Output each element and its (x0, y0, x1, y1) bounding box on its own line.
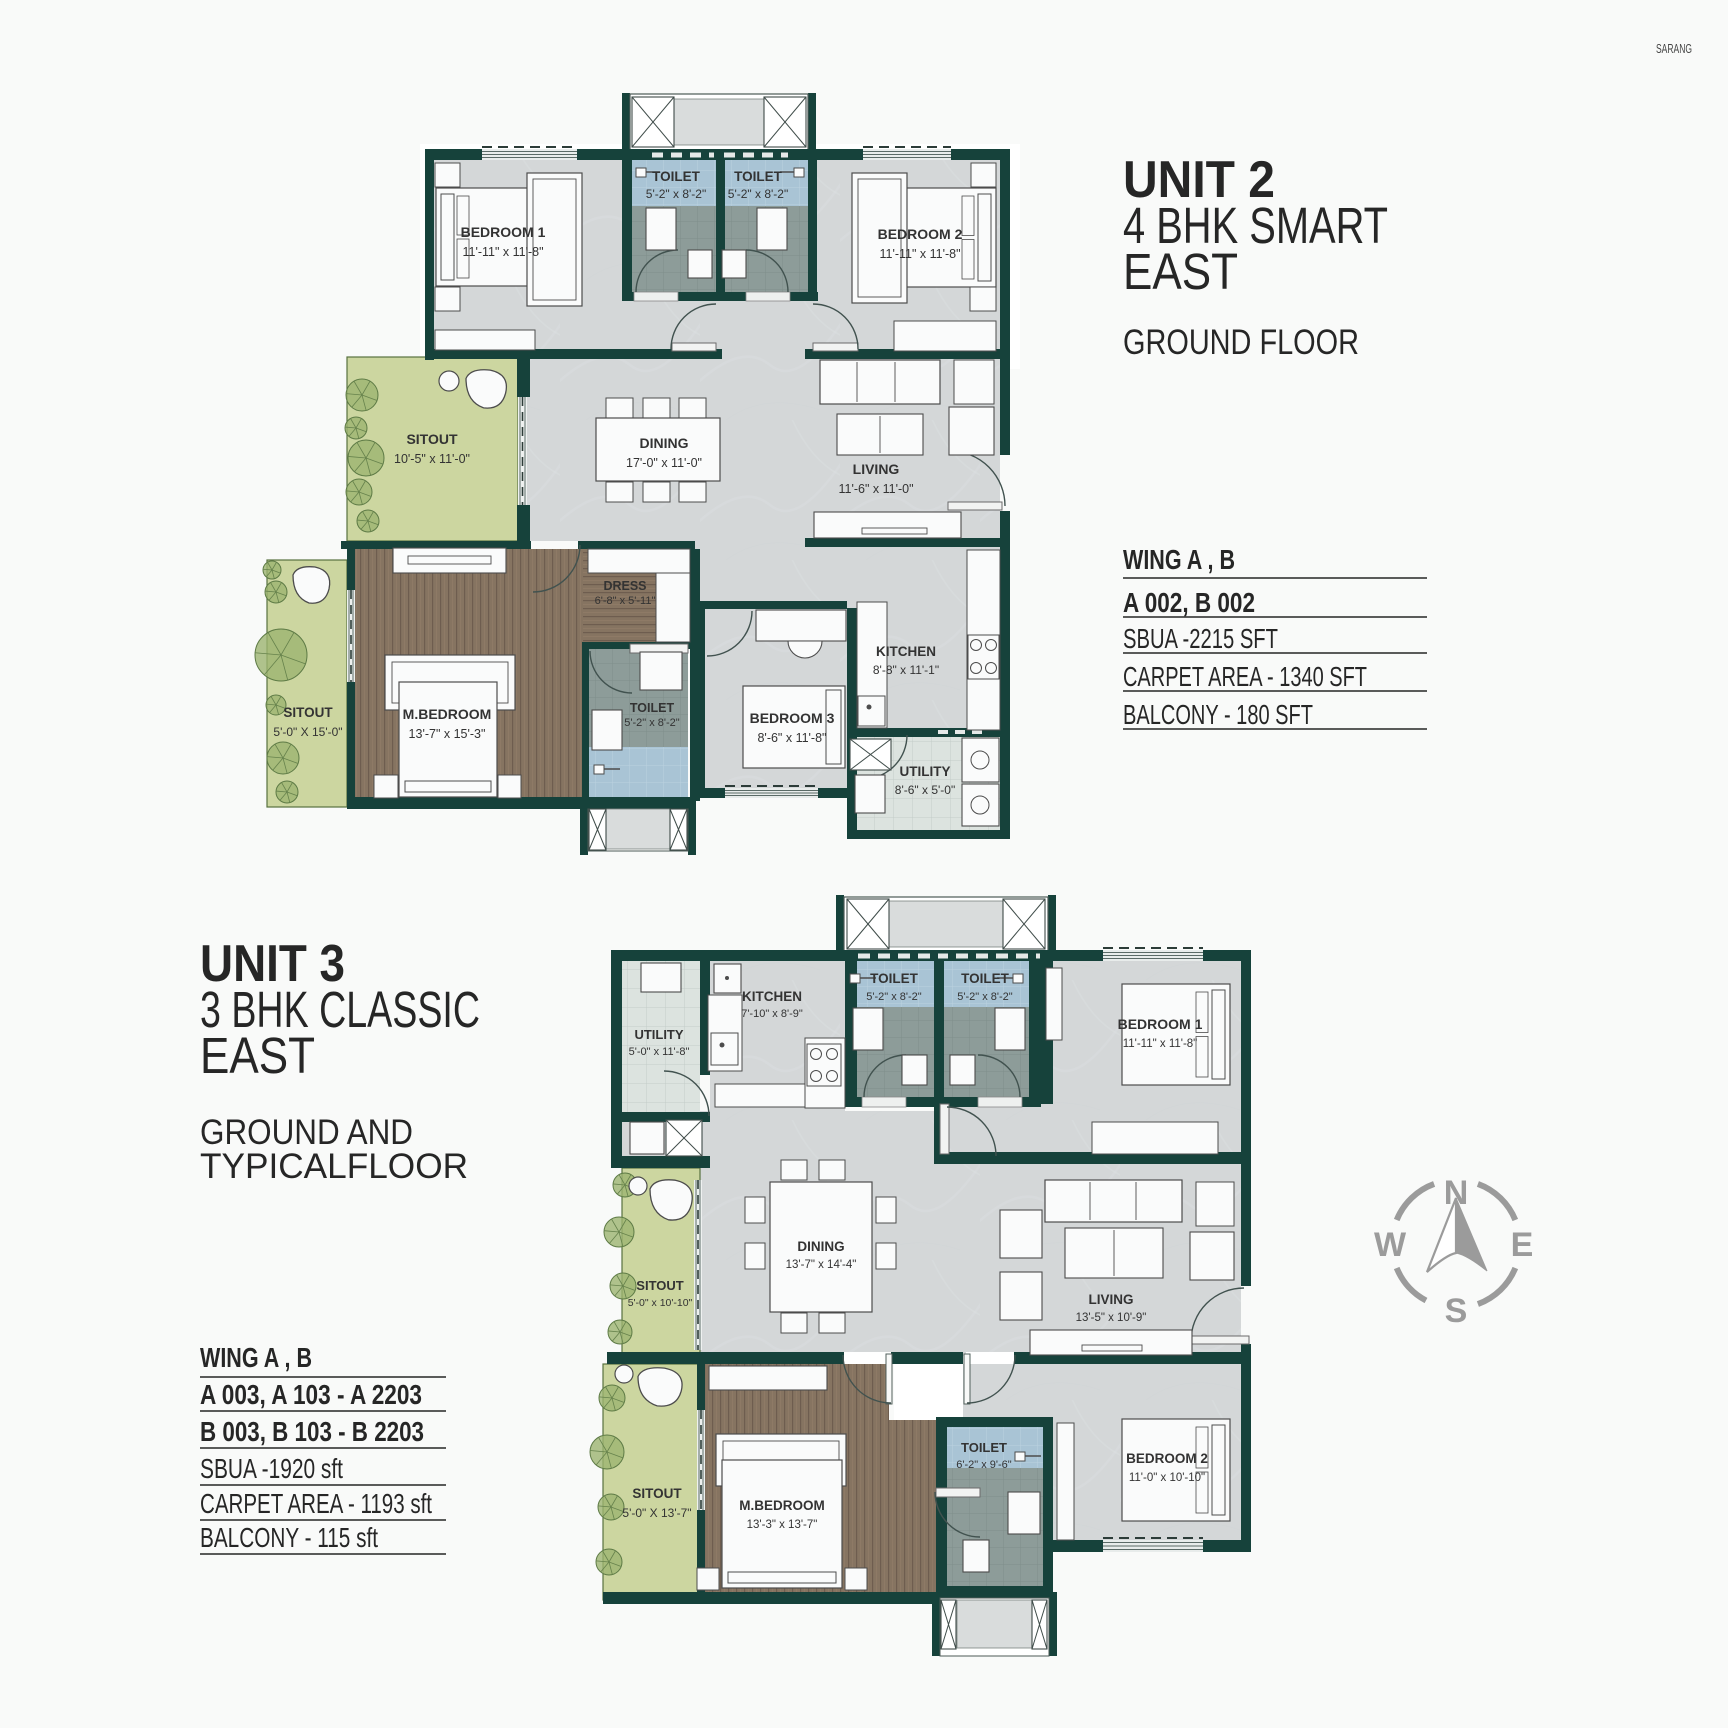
svg-text:WING A , B: WING A , B (200, 1342, 312, 1373)
svg-text:SARANG: SARANG (1656, 41, 1692, 56)
svg-text:TOILET: TOILET (961, 971, 1010, 986)
svg-text:13'-5" x 10'-9": 13'-5" x 10'-9" (1076, 1312, 1147, 1324)
svg-text:5'-2" x 8'-2": 5'-2" x 8'-2" (624, 717, 680, 729)
svg-text:UTILITY: UTILITY (900, 764, 951, 779)
svg-text:KITCHEN: KITCHEN (876, 644, 936, 659)
svg-text:DRESS: DRESS (603, 579, 646, 593)
svg-text:TYPICALFLOOR: TYPICALFLOOR (200, 1147, 468, 1186)
svg-text:5'-0" X 15'-0": 5'-0" X 15'-0" (273, 725, 342, 739)
svg-text:10'-5" x 11'-0": 10'-5" x 11'-0" (394, 452, 470, 466)
svg-text:5'-2" x 8'-2": 5'-2" x 8'-2" (957, 991, 1013, 1003)
svg-text:CARPET AREA - 1193 sft: CARPET AREA - 1193 sft (200, 1488, 432, 1519)
svg-text:SBUA -2215 SFT: SBUA -2215 SFT (1123, 623, 1278, 654)
svg-text:E: E (1511, 1226, 1534, 1264)
svg-text:11'-11" x 11'-8": 11'-11" x 11'-8" (462, 245, 543, 259)
svg-text:LIVING: LIVING (853, 461, 900, 477)
svg-text:EAST: EAST (1123, 243, 1238, 300)
svg-text:BEDROOM 1: BEDROOM 1 (461, 224, 546, 240)
svg-text:11'-0" x 10'-10": 11'-0" x 10'-10" (1129, 1472, 1205, 1484)
svg-text:5'-2" x 8'-2": 5'-2" x 8'-2" (646, 187, 706, 201)
svg-text:M.BEDROOM: M.BEDROOM (739, 1498, 825, 1513)
svg-text:SITOUT: SITOUT (406, 431, 458, 447)
svg-text:17'-0" x 11'-0": 17'-0" x 11'-0" (626, 456, 702, 470)
svg-text:KITCHEN: KITCHEN (742, 989, 802, 1004)
svg-text:M.BEDROOM: M.BEDROOM (403, 706, 492, 722)
svg-text:TOILET: TOILET (734, 169, 783, 184)
svg-text:TOILET: TOILET (961, 1440, 1007, 1455)
svg-text:LIVING: LIVING (1088, 1292, 1133, 1307)
svg-text:BEDROOM 1: BEDROOM 1 (1118, 1016, 1203, 1032)
svg-text:8'-8" x 11'-1": 8'-8" x 11'-1" (873, 663, 939, 677)
svg-text:BALCONY - 115 sft: BALCONY - 115 sft (200, 1522, 378, 1553)
svg-text:6'-2" x 9'-6": 6'-2" x 9'-6" (956, 1459, 1012, 1471)
svg-text:13'-7" x 15'-3": 13'-7" x 15'-3" (409, 727, 486, 741)
svg-text:5'-2" x 8'-2": 5'-2" x 8'-2" (866, 991, 922, 1003)
svg-text:TOILET: TOILET (652, 169, 701, 184)
svg-text:BEDROOM 2: BEDROOM 2 (878, 226, 963, 242)
svg-text:5'-0" X 13'-7": 5'-0" X 13'-7" (622, 1506, 691, 1520)
svg-text:11'-11" x 11'-8": 11'-11" x 11'-8" (1123, 1038, 1198, 1050)
svg-text:SITOUT: SITOUT (632, 1486, 682, 1501)
svg-text:13'-3" x 13'-7": 13'-3" x 13'-7" (747, 1519, 818, 1531)
svg-text:A 003, A 103 - A 2203: A 003, A 103 - A 2203 (200, 1379, 422, 1410)
svg-text:SITOUT: SITOUT (283, 705, 333, 720)
svg-text:6'-8" x 5'-11": 6'-8" x 5'-11" (595, 595, 656, 607)
svg-text:BALCONY - 180 SFT: BALCONY - 180 SFT (1123, 699, 1313, 730)
svg-text:GROUND FLOOR: GROUND FLOOR (1123, 323, 1359, 362)
svg-text:EAST: EAST (200, 1027, 315, 1084)
svg-text:S: S (1445, 1292, 1468, 1330)
svg-text:SITOUT: SITOUT (636, 1278, 683, 1293)
svg-text:5'-2" x 8'-2": 5'-2" x 8'-2" (728, 187, 788, 201)
svg-text:DINING: DINING (797, 1239, 844, 1254)
svg-text:11'-6" x 11'-0": 11'-6" x 11'-0" (838, 482, 913, 496)
svg-text:13'-7" x 14'-4": 13'-7" x 14'-4" (786, 1259, 857, 1271)
svg-text:BEDROOM 2: BEDROOM 2 (1126, 1451, 1208, 1466)
svg-text:CARPET AREA - 1340 SFT: CARPET AREA - 1340 SFT (1123, 661, 1367, 692)
svg-text:BEDROOM 3: BEDROOM 3 (750, 710, 835, 726)
svg-text:7'-10" x 8'-9": 7'-10" x 8'-9" (741, 1008, 803, 1020)
svg-text:TOILET: TOILET (870, 971, 919, 986)
svg-text:5'-0" x 11'-8": 5'-0" x 11'-8" (629, 1046, 690, 1058)
svg-text:8'-6" x 5'-0": 8'-6" x 5'-0" (895, 783, 955, 797)
svg-text:DINING: DINING (640, 435, 689, 451)
svg-text:SBUA -1920 sft: SBUA -1920 sft (200, 1453, 343, 1484)
svg-text:TOILET: TOILET (630, 701, 675, 715)
svg-text:A 002, B 002: A 002, B 002 (1123, 587, 1255, 618)
svg-text:B 003, B 103 - B 2203: B 003, B 103 - B 2203 (200, 1416, 424, 1447)
svg-text:8'-6" x 11'-8": 8'-6" x 11'-8" (757, 731, 826, 745)
svg-text:5'-0" x 10'-10": 5'-0" x 10'-10" (628, 1297, 693, 1309)
svg-text:W: W (1374, 1226, 1407, 1264)
svg-text:UTILITY: UTILITY (634, 1027, 683, 1042)
svg-text:11'-11" x 11'-8": 11'-11" x 11'-8" (879, 247, 960, 261)
svg-text:WING A , B: WING A , B (1123, 544, 1235, 575)
